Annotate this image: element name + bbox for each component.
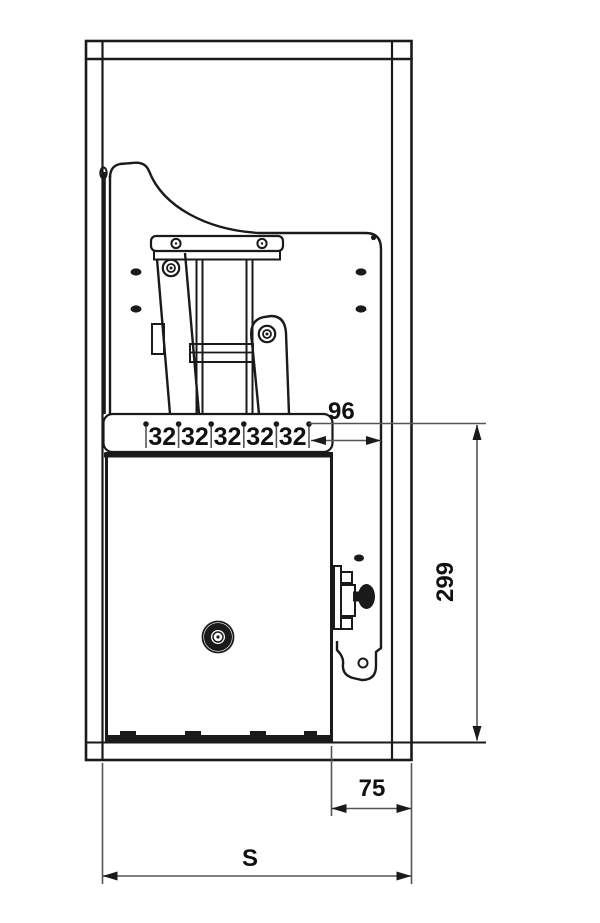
top-bar-screw-dot	[175, 242, 177, 244]
technical-drawing: 32 32 32 32 32	[0, 0, 600, 923]
basket-knob	[203, 622, 234, 653]
arrowhead-left	[332, 804, 347, 813]
arrowhead-up	[473, 425, 482, 441]
dim-label-96: 96	[328, 398, 355, 425]
arm-pivot-dot	[170, 267, 173, 270]
mechanism-top-bar	[151, 236, 283, 260]
plate-slot-hole	[131, 268, 142, 275]
lift-arm-right	[251, 316, 289, 414]
latch-knob	[353, 584, 375, 609]
latch-pin-small	[354, 555, 364, 562]
basket-outline	[107, 454, 332, 741]
dim-label-299: 299	[432, 562, 459, 602]
plate-slot-hole	[356, 305, 367, 312]
dim-label-32: 32	[246, 423, 274, 451]
plate-corner-notch	[371, 235, 376, 240]
dimension-32-chain: 32 32 32 32 32	[148, 423, 306, 451]
dim-label-32: 32	[181, 423, 209, 451]
dim-label-75: 75	[359, 775, 386, 802]
arrowhead-right	[397, 804, 412, 813]
technical-drawing-page: 32 32 32 32 32	[0, 0, 600, 923]
lift-arm-left	[157, 253, 199, 414]
dimension-75: 75	[332, 746, 412, 884]
dim-label-32: 32	[148, 423, 176, 451]
dimension-96: 96	[309, 398, 486, 445]
lift-mechanism	[151, 236, 289, 414]
arrowhead-right	[366, 436, 381, 445]
plate-slot-hole	[356, 268, 367, 275]
plate-slot-hole	[131, 305, 142, 312]
dim-label-32: 32	[279, 423, 307, 451]
pullout-basket	[104, 454, 332, 741]
dim-label-s: S	[242, 845, 258, 872]
top-bar-screw-dot	[261, 242, 263, 244]
arrowhead-left	[103, 872, 118, 881]
dim-label-32: 32	[214, 423, 242, 451]
latch-bracket	[334, 566, 355, 629]
dimension-299: 299	[432, 425, 482, 742]
arrowhead-down	[473, 726, 482, 741]
arrowhead-right	[397, 872, 412, 881]
release-latch	[334, 555, 375, 630]
arm-pivot-dot	[266, 333, 269, 336]
plate-foot-hole	[359, 659, 368, 668]
front-mounting-rail: 32 32 32 32 32	[104, 414, 333, 452]
